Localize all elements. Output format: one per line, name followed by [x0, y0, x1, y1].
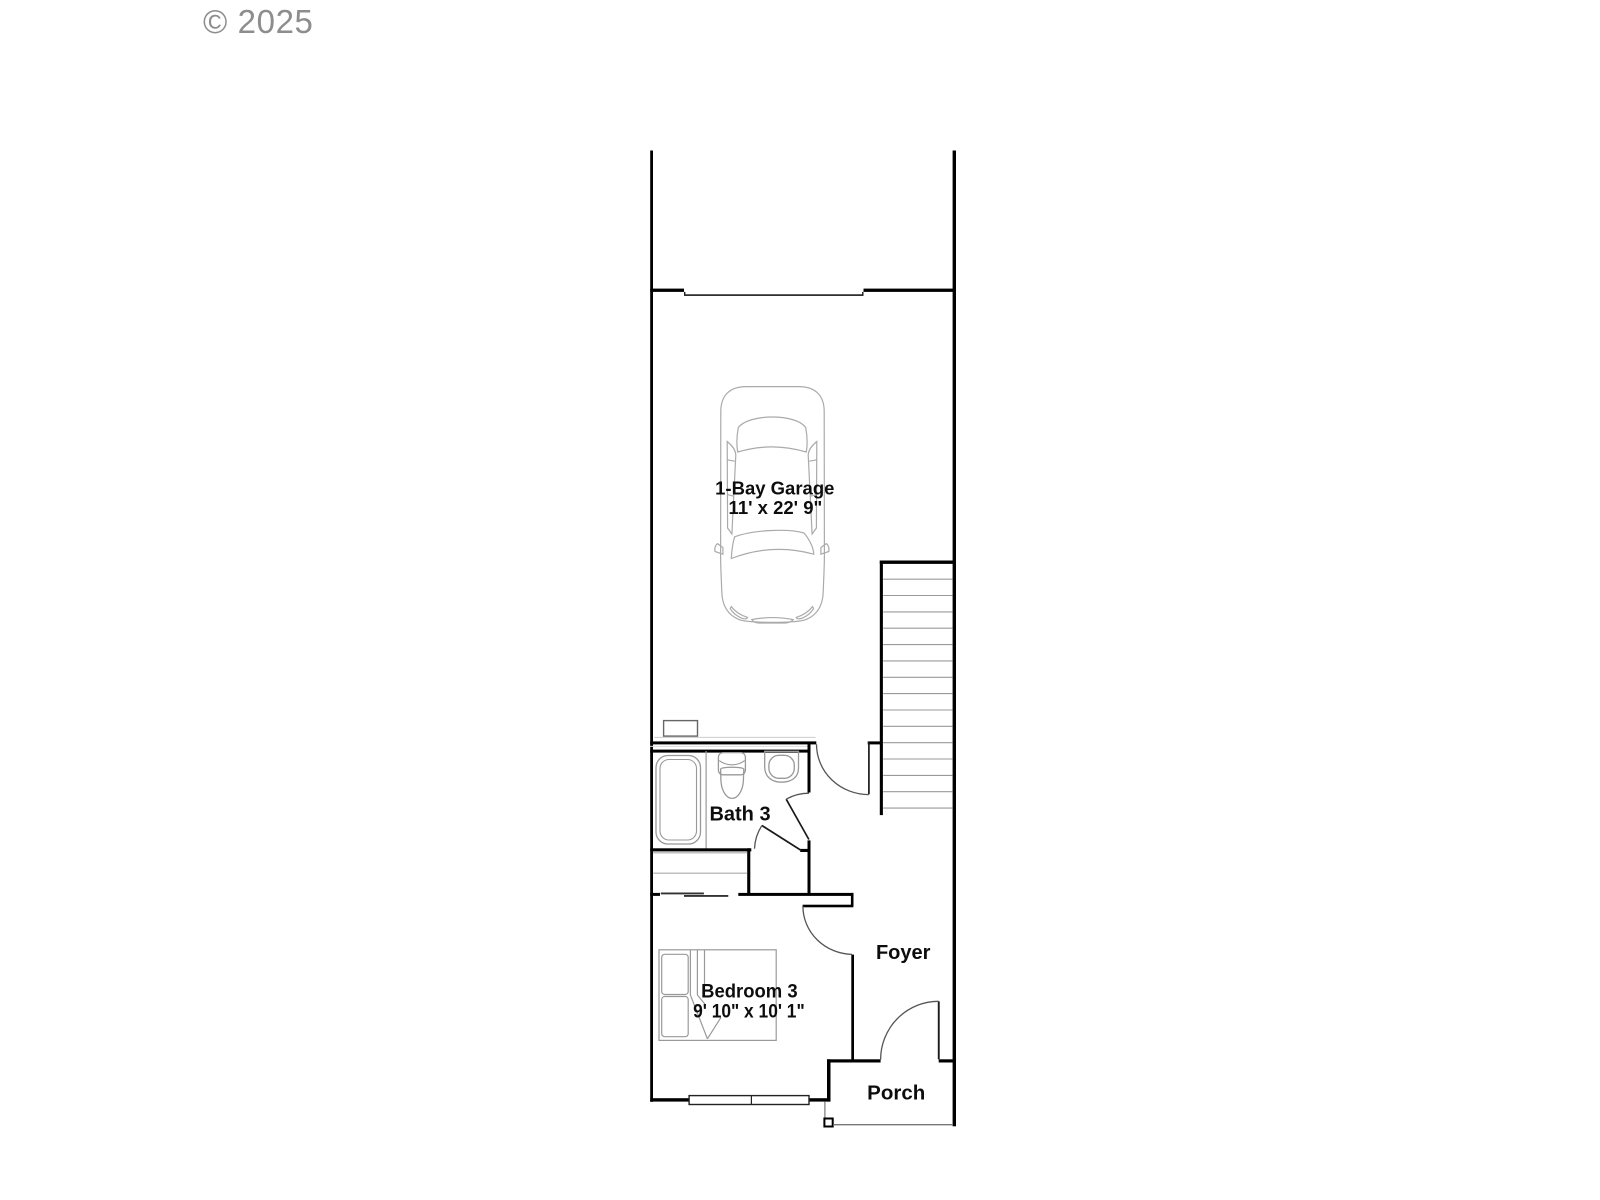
svg-text:1-Bay Garage: 1-Bay Garage — [715, 477, 834, 498]
svg-text:Porch: Porch — [867, 1081, 925, 1104]
svg-text:© 2025: © 2025 — [203, 3, 314, 40]
svg-text:Bath 3: Bath 3 — [709, 804, 770, 826]
svg-text:11' x 22' 9": 11' x 22' 9" — [729, 497, 823, 518]
svg-text:9' 10" x 10' 1": 9' 10" x 10' 1" — [693, 1000, 805, 1022]
svg-text:Bedroom 3: Bedroom 3 — [701, 980, 798, 1002]
svg-text:Foyer: Foyer — [876, 942, 931, 964]
